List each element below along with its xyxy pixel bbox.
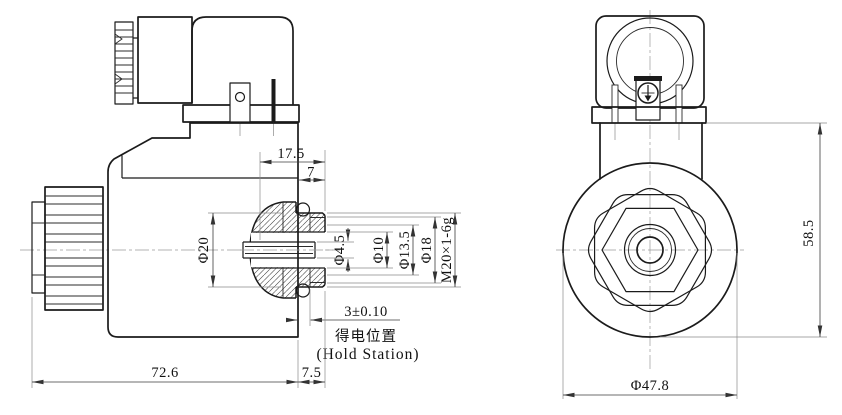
front-connector <box>592 16 706 179</box>
front-centerlines <box>556 10 744 372</box>
side-view-dimensions: 17.5 7 Φ20 Φ4.5 Φ10 Φ13.5 Φ18 <box>32 146 461 388</box>
dim-label-72-6: 72.6 <box>151 365 178 381</box>
dim-label-stroke: 3±0.10 <box>344 304 388 320</box>
dim-label-phi18: Φ18 <box>419 237 435 264</box>
dim-label-7: 7 <box>307 165 315 181</box>
dim-label-58-5: 58.5 <box>801 219 817 246</box>
dim-label-17-5: 17.5 <box>277 146 304 162</box>
dim-label-7-5: 7.5 <box>302 365 322 381</box>
end-cap <box>32 187 103 310</box>
din-connector <box>183 17 299 136</box>
dim-label-phi4-5: Φ4.5 <box>332 235 348 266</box>
front-view-dimensions: 58.5 Φ47.8 <box>563 123 827 399</box>
hold-station-label-en: (Hold Station) <box>316 346 419 363</box>
dim-label-phi47-8: Φ47.8 <box>631 378 669 394</box>
technical-drawing-page: 17.5 7 Φ20 Φ4.5 Φ10 Φ13.5 Φ18 <box>0 0 842 415</box>
dim-label-phi20: Φ20 <box>196 237 212 264</box>
dim-label-phi10: Φ10 <box>371 237 387 264</box>
side-view: 17.5 7 Φ20 Φ4.5 Φ10 Φ13.5 Φ18 <box>20 17 461 388</box>
dim-label-phi13-5: Φ13.5 <box>397 231 413 269</box>
dim-label-thread: M20×1-6g <box>439 217 455 283</box>
front-view: 58.5 Φ47.8 <box>556 10 827 399</box>
terminal-pin <box>272 79 276 122</box>
hold-station-label-cn: 得电位置 <box>335 328 397 345</box>
solenoid-coil-drawing: 17.5 7 Φ20 Φ4.5 Φ10 Φ13.5 Φ18 <box>0 0 842 415</box>
cable-gland <box>115 17 192 104</box>
